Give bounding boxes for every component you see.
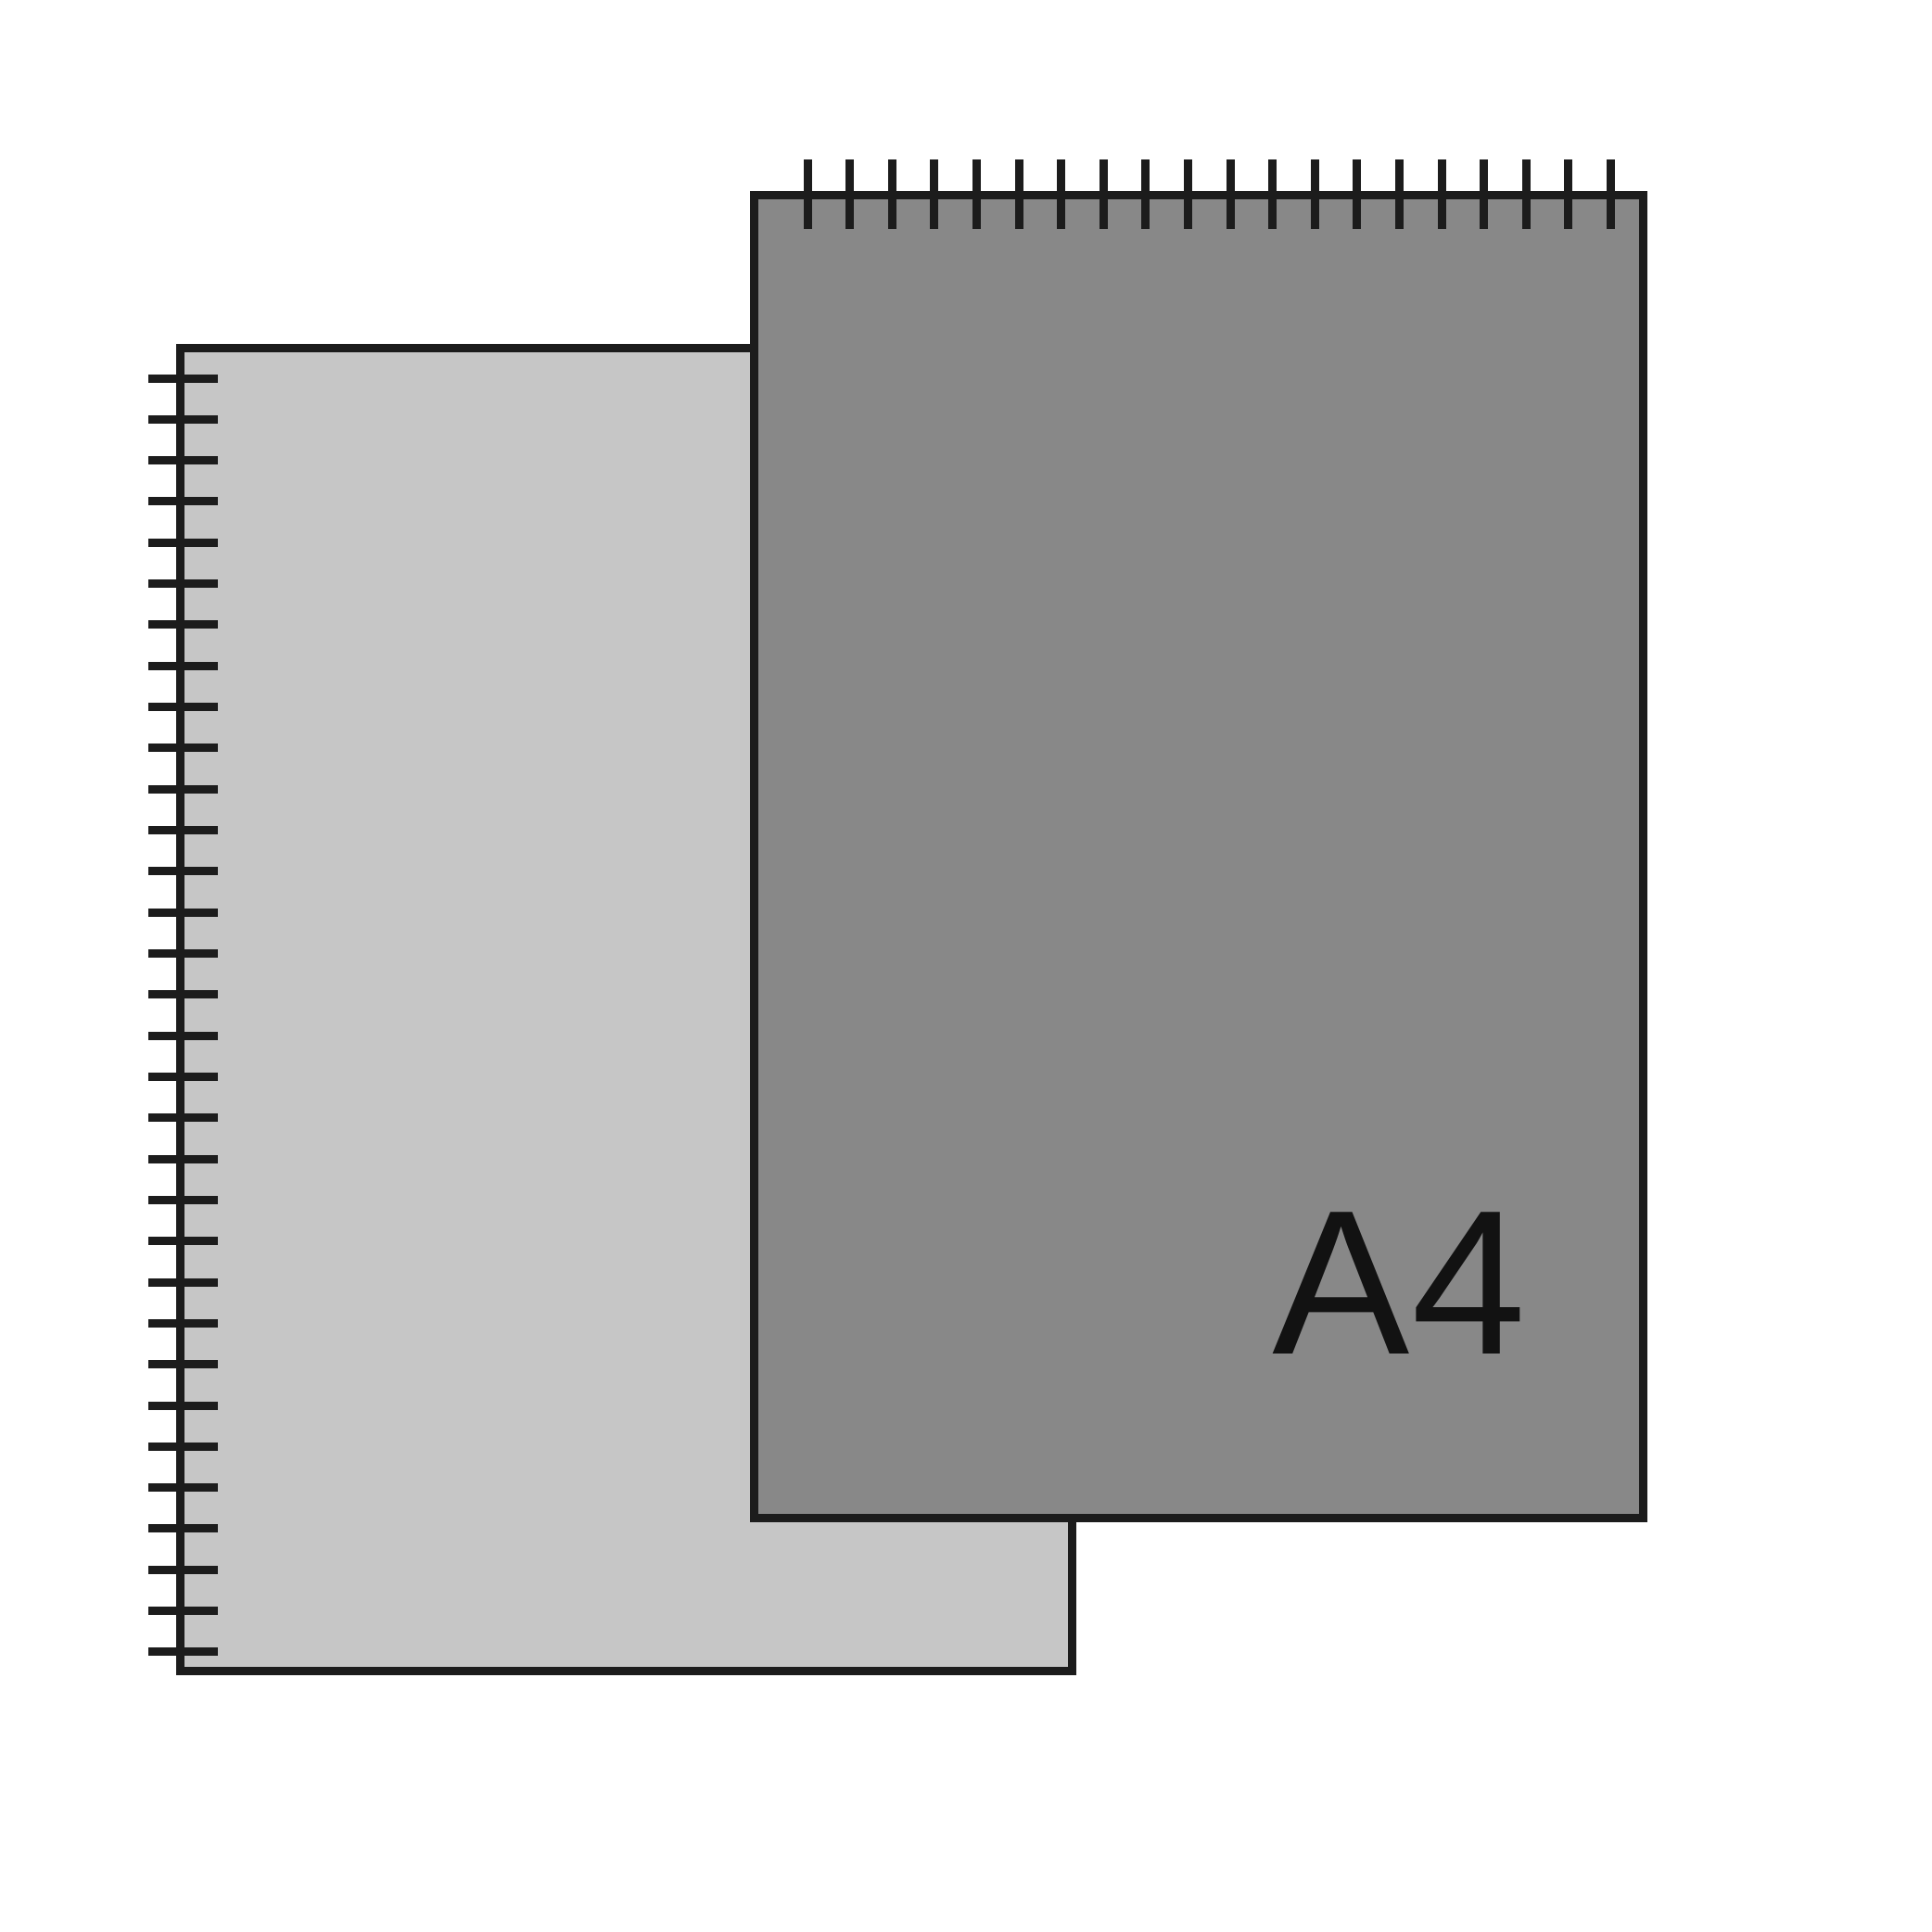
spiral-ring <box>148 456 218 464</box>
spiral-ring <box>148 1196 218 1204</box>
spiral-ring <box>1184 159 1192 229</box>
spiral-ring <box>804 159 812 229</box>
spiral-ring <box>148 1443 218 1451</box>
spiral-ring <box>148 1566 218 1574</box>
spiral-ring <box>148 909 218 917</box>
spiral-ring <box>1353 159 1361 229</box>
spiral-ring <box>1099 159 1108 229</box>
spiral-ring <box>1564 159 1572 229</box>
spiral-ring <box>888 159 896 229</box>
spiral-ring <box>1141 159 1150 229</box>
spiral-ring <box>148 1032 218 1040</box>
spiral-ring <box>148 1360 218 1368</box>
spiral-ring <box>148 1155 218 1163</box>
spiral-ring <box>1057 159 1065 229</box>
notepad-size-illustration: A4 <box>0 0 1932 1932</box>
notepad-front-a4: A4 <box>750 191 1647 1522</box>
spiral-ring <box>148 579 218 588</box>
spiral-ring <box>972 159 981 229</box>
spiral-ring <box>148 1402 218 1410</box>
spiral-ring <box>148 1647 218 1656</box>
spiral-ring <box>148 620 218 629</box>
spiral-ring <box>148 1524 218 1532</box>
spiral-ring <box>148 1483 218 1492</box>
spiral-ring <box>845 159 854 229</box>
spiral-ring <box>148 415 218 424</box>
spiral-ring <box>1395 159 1404 229</box>
spiral-ring <box>148 1319 218 1328</box>
spiral-ring <box>148 949 218 958</box>
spiral-ring <box>148 703 218 711</box>
spiral-ring <box>148 1607 218 1615</box>
spiral-ring <box>1268 159 1277 229</box>
spiral-ring <box>148 826 218 834</box>
spiral-ring <box>148 539 218 547</box>
spiral-ring <box>1015 159 1023 229</box>
spiral-ring <box>1438 159 1446 229</box>
spiral-ring <box>1607 159 1615 229</box>
spiral-ring <box>148 1278 218 1287</box>
spiral-ring <box>1522 159 1531 229</box>
spiral-ring <box>148 375 218 383</box>
spiral-ring <box>148 867 218 875</box>
spiral-ring <box>148 1113 218 1122</box>
spiral-ring <box>148 662 218 670</box>
spiral-ring <box>148 990 218 998</box>
spiral-ring <box>148 1073 218 1081</box>
spiral-ring <box>148 1237 218 1245</box>
spiral-ring <box>1311 159 1319 229</box>
spiral-ring <box>1227 159 1235 229</box>
spiral-ring <box>148 785 218 794</box>
spiral-ring <box>930 159 938 229</box>
spiral-ring <box>1480 159 1488 229</box>
spiral-ring <box>148 497 218 505</box>
paper-size-label: A4 <box>1272 1180 1528 1386</box>
spiral-ring <box>148 744 218 752</box>
